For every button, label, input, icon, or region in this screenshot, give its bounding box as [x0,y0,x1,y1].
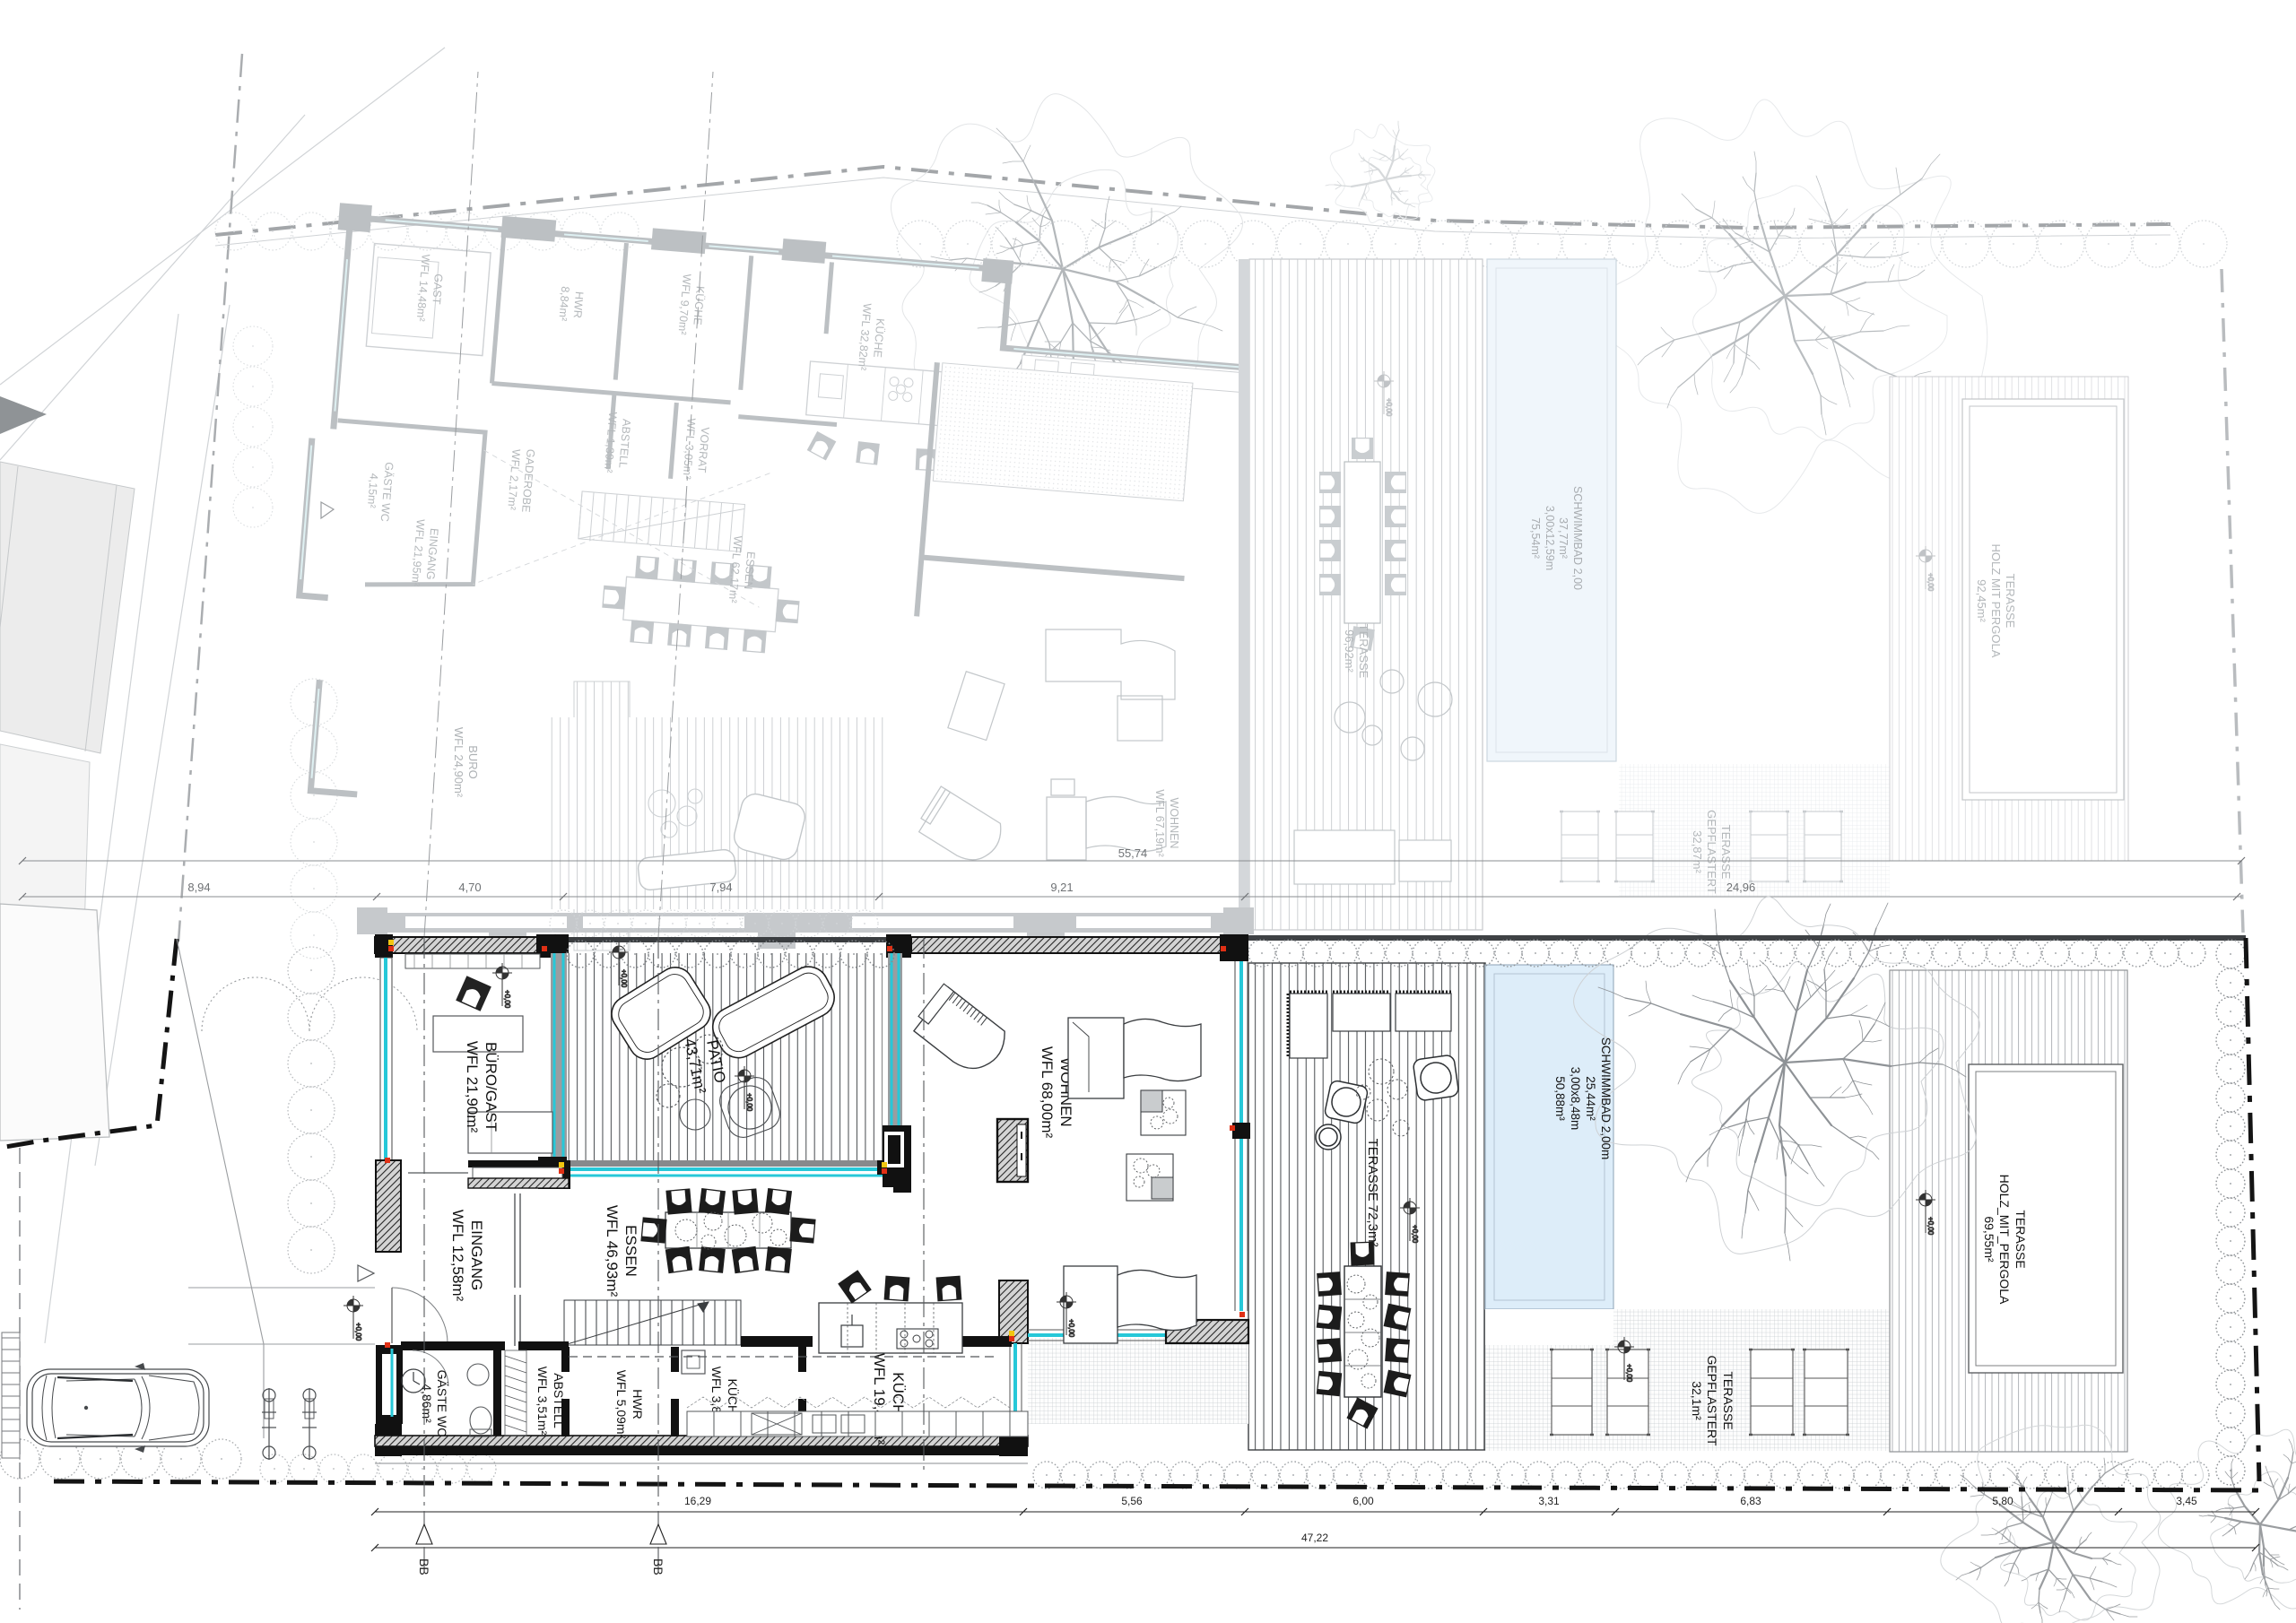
svg-text:+0,00: +0,00 [1926,573,1935,592]
svg-text:+0,00: +0,00 [620,969,628,988]
svg-text:5,80: 5,80 [1992,1495,2013,1507]
svg-text:WFL 46,93m²: WFL 46,93m² [604,1205,621,1298]
svg-text:WFL 68,00m²: WFL 68,00m² [1039,1046,1056,1139]
svg-text:TERASSE: TERASSE [1719,825,1733,880]
svg-text:GAST: GAST [430,273,445,305]
svg-text:HOLZ_MIT_PERGOLA: HOLZ_MIT_PERGOLA [1997,1175,2012,1305]
svg-text:8,94: 8,94 [187,881,210,894]
svg-text:WFL 12,58m²: WFL 12,58m² [449,1210,466,1302]
svg-text:ESSEN: ESSEN [622,1225,639,1277]
svg-text:SCHWIMMBAD 2,00: SCHWIMMBAD 2,00 [1571,486,1584,590]
svg-text:WOHNEN: WOHNEN [1168,798,1180,849]
svg-text:6,83: 6,83 [1740,1495,1761,1507]
svg-text:4,70: 4,70 [458,881,481,894]
svg-text:+0,00: +0,00 [1385,398,1393,417]
svg-text:BB: BB [651,1558,665,1575]
svg-text:BB: BB [417,1558,431,1575]
svg-text:TERASSE: TERASSE [1357,624,1370,679]
svg-text:3,00x8,48m: 3,00x8,48m [1569,1067,1582,1131]
svg-text:+0,00: +0,00 [503,990,511,1009]
svg-text:ABSTELL: ABSTELL [552,1373,566,1428]
svg-text:75,54m²: 75,54m² [1529,517,1542,559]
svg-text:+0,00: +0,00 [354,1323,362,1341]
svg-text:50,88m³: 50,88m³ [1553,1076,1567,1121]
svg-text:24,96: 24,96 [1726,881,1756,894]
svg-text:BURO: BURO [466,745,480,779]
svg-text:47,22: 47,22 [1301,1532,1328,1544]
svg-text:HOLZ MIT PERGOLA: HOLZ MIT PERGOLA [1989,544,2003,658]
svg-text:TERASSE: TERASSE [2013,1210,2028,1268]
svg-text:5,56: 5,56 [1121,1495,1143,1507]
svg-text:+0,00: +0,00 [1067,1319,1075,1338]
svg-text:6,00: 6,00 [1352,1495,1374,1507]
svg-text:32,1m²: 32,1m² [1690,1381,1704,1420]
svg-text:WFL 67,19m²: WFL 67,19m² [1153,789,1166,856]
svg-text:TERASSE 72,3m²: TERASSE 72,3m² [1365,1139,1380,1247]
svg-text:32,87m²: 32,87m² [1691,830,1704,873]
svg-text:92,45m²: 92,45m² [1975,579,1988,622]
svg-text:+0,00: +0,00 [1625,1364,1633,1383]
svg-text:7,94: 7,94 [709,881,732,894]
svg-text:55,74: 55,74 [1118,846,1148,860]
svg-text:4,86m²: 4,86m² [420,1384,434,1423]
svg-text:HWR: HWR [631,1389,645,1419]
svg-text:HWR: HWR [571,291,586,319]
svg-text:WFL 5,09m²: WFL 5,09m² [614,1370,629,1439]
svg-text:+0,00: +0,00 [1926,1217,1935,1236]
svg-text:EINGANG: EINGANG [468,1220,485,1290]
svg-text:GEPFLASTERT: GEPFLASTERT [1705,1356,1719,1446]
svg-text:TERASSE: TERASSE [1721,1371,1735,1429]
svg-text:37,77m²: 37,77m² [1557,517,1570,559]
svg-text:BÜRO/GAST: BÜRO/GAST [483,1042,500,1132]
svg-text:+0,00: +0,00 [1411,1225,1419,1244]
svg-text:25,44m²: 25,44m² [1584,1076,1597,1121]
svg-text:GÄSTE WC: GÄSTE WC [435,1370,449,1437]
svg-text:96,92m²: 96,92m² [1343,629,1356,673]
svg-text:3,45: 3,45 [2176,1495,2197,1507]
svg-text:WFL 3,51m²: WFL 3,51m² [535,1367,550,1436]
svg-text:69,55m²: 69,55m² [1982,1216,1996,1263]
svg-text:GEPFLASTERT: GEPFLASTERT [1705,810,1718,894]
svg-text:3,00x12,59m: 3,00x12,59m [1544,506,1556,570]
svg-text:+0,00: +0,00 [745,1093,753,1112]
svg-text:TERASSE: TERASSE [2004,574,2017,629]
svg-text:WFL 24,90m²: WFL 24,90m² [452,727,465,798]
svg-text:3,31: 3,31 [1538,1495,1560,1507]
svg-text:9,21: 9,21 [1050,881,1073,894]
svg-text:SCHWIMMBAD 2,00m: SCHWIMMBAD 2,00m [1599,1037,1613,1160]
svg-text:16,29: 16,29 [684,1495,711,1507]
svg-text:WFL 21,90m²: WFL 21,90m² [464,1041,481,1133]
